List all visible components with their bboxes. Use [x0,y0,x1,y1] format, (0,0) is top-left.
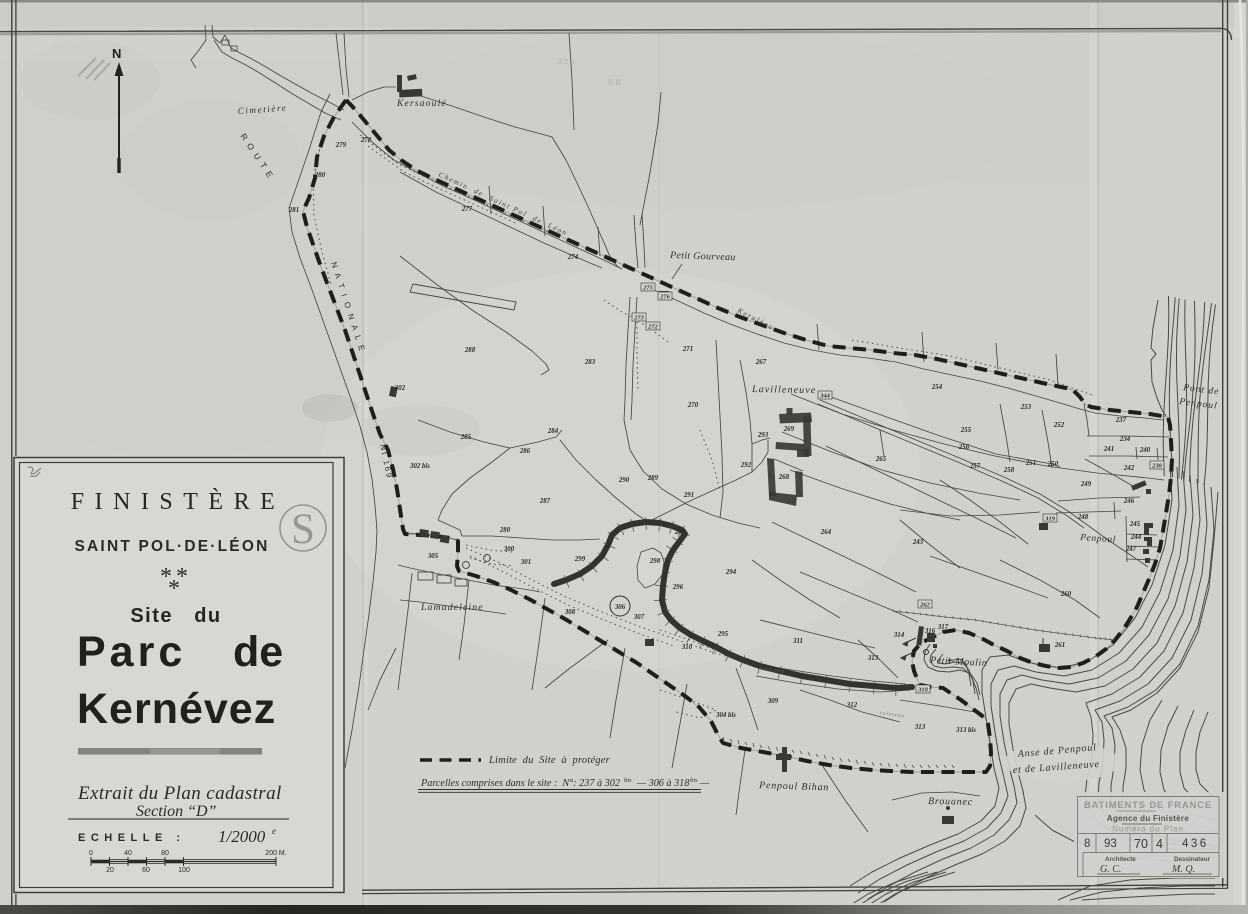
svg-text:— 306 à 318: — 306 à 318 [636,778,689,789]
svg-text:N: N [112,46,121,61]
svg-text:20: 20 [106,867,114,874]
svg-text:302 bis: 302 bis [409,463,430,470]
svg-text:277: 277 [461,206,473,213]
svg-text:313 bis: 313 bis [955,727,976,734]
svg-text:317: 317 [937,624,949,631]
svg-text:258: 258 [1003,467,1015,474]
svg-text:298: 298 [649,558,661,565]
svg-text:269: 269 [783,426,795,433]
svg-text:273: 273 [633,314,645,321]
svg-text:e: e [272,826,276,836]
svg-text:bis: bis [624,777,632,784]
svg-text:291: 291 [683,492,694,499]
svg-text:290: 290 [618,477,630,484]
svg-text:250: 250 [1047,461,1059,468]
svg-text:Agence du Finistère: Agence du Finistère [1107,814,1189,823]
svg-text:270: 270 [687,402,699,409]
svg-text:301: 301 [520,559,531,566]
svg-text:Numéro du Plan: Numéro du Plan [1112,825,1184,834]
svg-text:319: 319 [1044,515,1056,522]
svg-text:294: 294 [725,569,737,576]
svg-text:344: 344 [819,392,831,399]
svg-text:Extrait du Plan cadastral: Extrait du Plan cadastral [77,783,282,804]
svg-text:1/2000: 1/2000 [218,827,266,846]
svg-text:280: 280 [314,172,326,179]
svg-text:238: 238 [1151,462,1163,469]
svg-text:Site du: Site du [130,605,221,627]
svg-text:289: 289 [647,475,659,482]
svg-text:304 bis: 304 bis [715,712,736,719]
svg-text:bis: bis [690,777,698,784]
svg-text:311: 311 [792,638,803,645]
svg-text:SAINT POL·DE·LÉON: SAINT POL·DE·LÉON [75,538,270,555]
svg-text:3 2 5: 3 2 5 [558,57,574,66]
svg-text:248: 248 [1077,514,1089,521]
svg-text:Architecte: Architecte [1105,856,1136,863]
svg-text:292: 292 [740,462,752,469]
svg-text:G. C.: G. C. [1100,864,1121,875]
svg-text:285: 285 [460,434,472,441]
svg-text:237: 237 [1115,417,1127,424]
svg-text:254: 254 [931,384,943,391]
svg-text:262: 262 [919,601,931,608]
svg-text:Parcelles comprises dans le si: Parcelles comprises dans le site : N°: 2… [420,778,620,789]
svg-text:Lavilleneuve: Lavilleneuve [751,384,816,396]
svg-text:ECHELLE :: ECHELLE : [78,832,186,844]
svg-text:257: 257 [969,463,981,470]
svg-text:296: 296 [672,584,684,591]
svg-text:Dessinateur: Dessinateur [1174,856,1211,863]
svg-text:318: 318 [917,686,929,693]
svg-text:—: — [699,778,710,789]
svg-text:286: 286 [519,448,531,455]
svg-text:M. Q.: M. Q. [1171,864,1195,875]
svg-text:BATIMENTS DE FRANCE: BATIMENTS DE FRANCE [1084,800,1212,811]
svg-text:275: 275 [642,284,654,291]
svg-text:253: 253 [1020,404,1032,411]
svg-text:278: 278 [360,137,372,144]
svg-text:8: 8 [1084,838,1090,850]
svg-text:279: 279 [335,142,347,149]
svg-text:240: 240 [1139,447,1151,454]
svg-text:243: 243 [912,539,924,546]
svg-text:272: 272 [647,323,659,330]
svg-text:B B: B B [608,78,621,87]
svg-text:264: 264 [820,529,832,536]
svg-text:246: 246 [1123,498,1135,505]
svg-text:Petit Gourveau: Petit Gourveau [669,250,736,263]
svg-text:307: 307 [633,614,645,621]
svg-text:60: 60 [142,867,150,874]
svg-text:242: 242 [1123,465,1135,472]
svg-text:244: 244 [1130,534,1142,541]
svg-text:Parc: Parc [77,628,186,676]
svg-text:295: 295 [717,631,729,638]
svg-text:302: 302 [394,385,406,392]
svg-text:de: de [233,628,283,676]
svg-text:245: 245 [1129,521,1141,528]
svg-text:305: 305 [427,553,439,560]
svg-text:271: 271 [682,346,693,353]
svg-text:251: 251 [1025,460,1036,467]
svg-text:299: 299 [574,556,586,563]
svg-text:256: 256 [958,444,970,451]
svg-text:308: 308 [564,609,576,616]
svg-text:Limite du Site à protéger: Limite du Site à protéger [488,755,611,766]
svg-text:283: 283 [584,359,596,366]
svg-text:284: 284 [547,428,559,435]
svg-text:80: 80 [161,850,169,857]
svg-text:261: 261 [1054,642,1065,649]
svg-text:310: 310 [681,644,693,651]
svg-text:100: 100 [178,867,190,874]
svg-text:281: 281 [288,207,299,214]
svg-text:FINISTÈRE: FINISTÈRE [71,489,286,515]
svg-text:4: 4 [1156,837,1163,851]
svg-text:93: 93 [1104,838,1117,850]
svg-text:Kernévez: Kernévez [77,685,276,733]
svg-text:Kersaoulé: Kersaoulé [396,99,447,109]
svg-text:280: 280 [499,527,511,534]
svg-text:268: 268 [778,474,790,481]
svg-text:314: 314 [893,632,905,639]
svg-text:306: 306 [614,604,626,611]
svg-text:287: 287 [539,498,551,505]
svg-text:313: 313 [867,655,879,662]
svg-text:249: 249 [1080,481,1092,488]
svg-text:297: 297 [674,529,686,536]
svg-text:267: 267 [755,359,767,366]
svg-text:Section “D”: Section “D” [136,803,217,820]
svg-text:288: 288 [464,347,476,354]
svg-text:247: 247 [1125,546,1137,553]
svg-text:70: 70 [1134,837,1148,851]
svg-text:0: 0 [89,850,93,857]
svg-text:*: * [168,576,180,602]
svg-text:40: 40 [124,850,132,857]
svg-text:309: 309 [767,698,779,705]
svg-text:313: 313 [914,724,926,731]
svg-text:293: 293 [757,432,769,439]
svg-text:255: 255 [960,427,972,434]
svg-text:316: 316 [924,628,936,635]
svg-text:312: 312 [846,702,858,709]
svg-text:252: 252 [1053,422,1065,429]
svg-text:276: 276 [659,293,671,300]
svg-text:241: 241 [1103,446,1114,453]
svg-text:300: 300 [503,546,515,553]
svg-text:260: 260 [1060,591,1072,598]
svg-text:265: 265 [875,456,887,463]
svg-text:S: S [291,506,315,553]
svg-text:Lamadeleine: Lamadeleine [420,602,484,613]
svg-text:234: 234 [1119,436,1131,443]
svg-text:436: 436 [1182,838,1209,850]
svg-text:274: 274 [567,254,579,261]
svg-text:200 M.: 200 M. [265,850,286,857]
svg-text:Brouanec: Brouanec [928,796,973,808]
